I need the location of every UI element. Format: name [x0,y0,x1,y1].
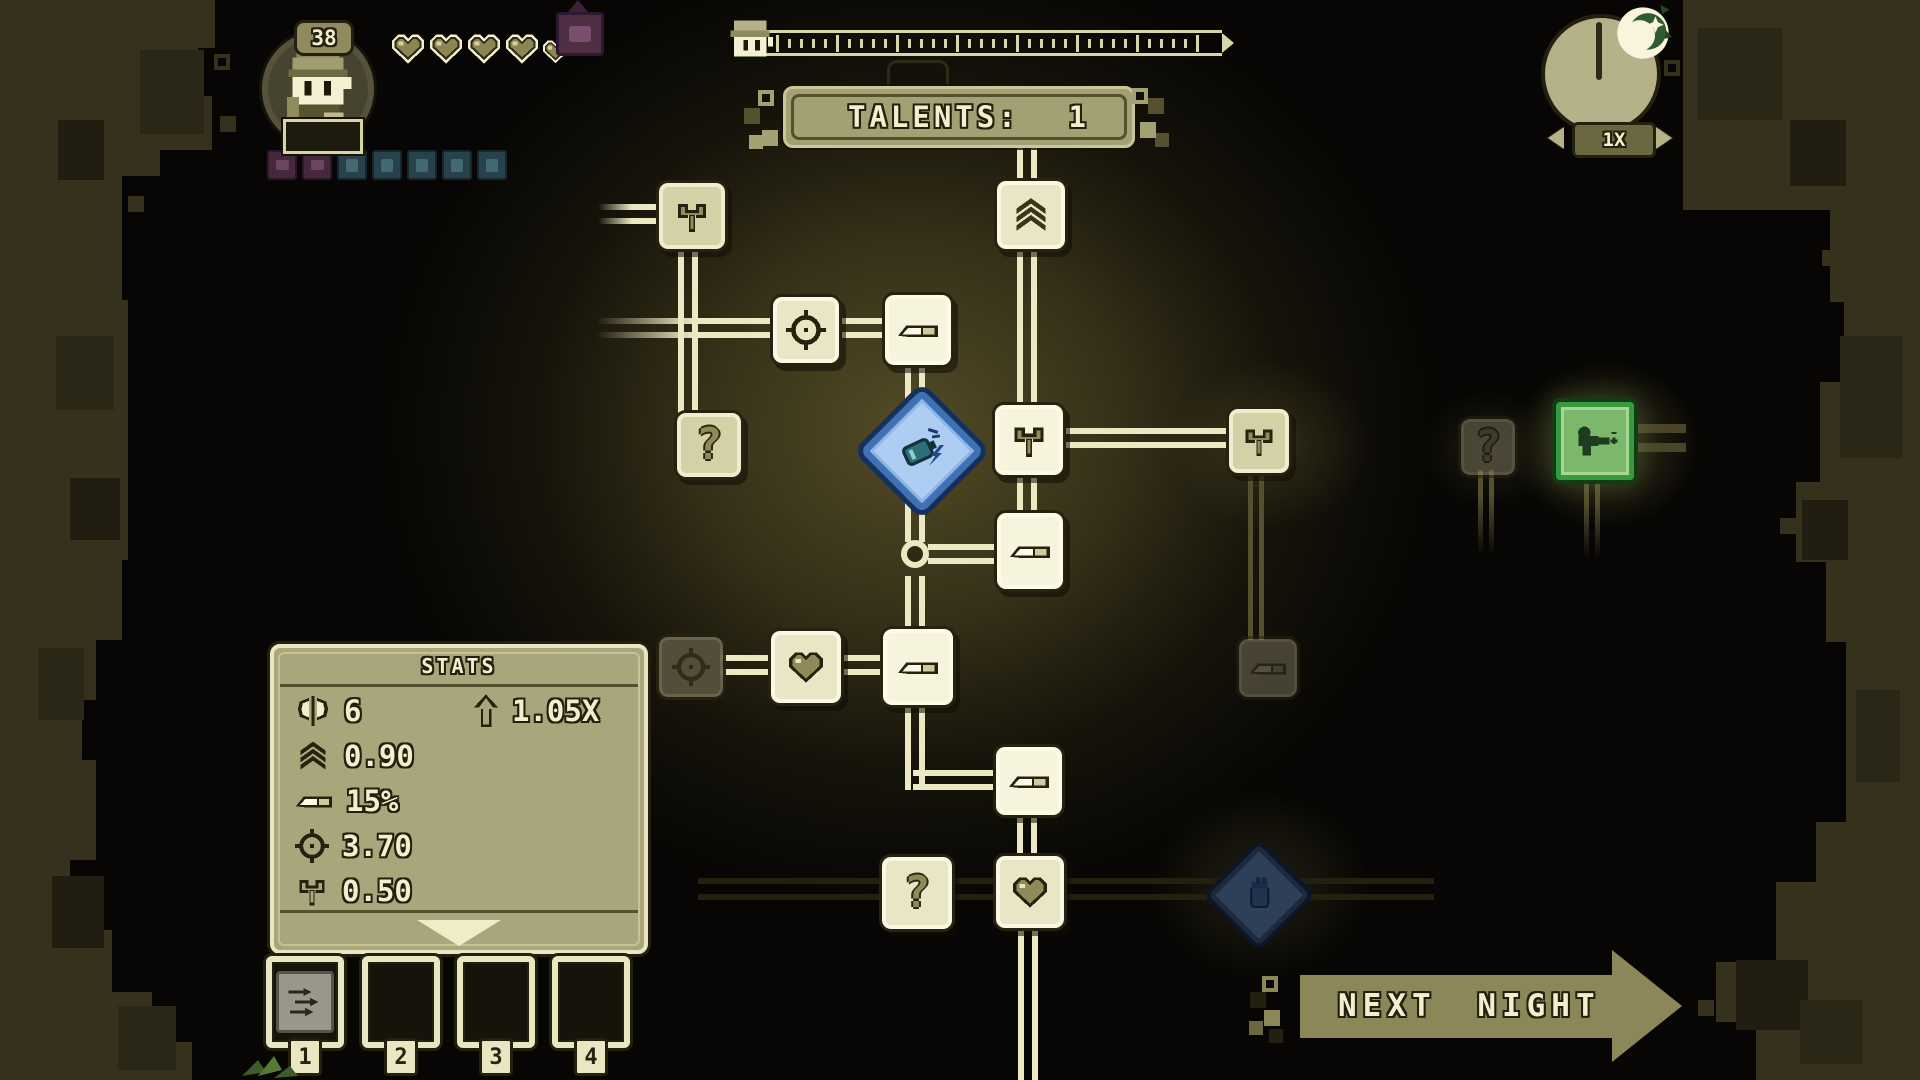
slot-number: 2 [384,1038,418,1076]
branch-decoration [38,648,84,720]
talent-node-question-bottom[interactable]: ? [879,854,955,932]
axe-icon [294,694,332,728]
status-glyph [311,160,324,170]
progress-tick [920,39,923,48]
heart [502,30,542,67]
hammer-icon [672,196,712,236]
talent-node-chevrons-top[interactable] [994,178,1068,252]
stat-row-multiplier: 1.05X [472,692,599,730]
buff-glyph [569,26,591,42]
buff-arrow-icon [568,0,588,12]
item-slot-4[interactable]: 4 [552,956,630,1048]
status-square-purple [267,150,297,180]
tree-link-locked [1630,443,1686,452]
talent-node-heart-2[interactable] [993,853,1067,931]
talent-node-knife-locked[interactable] [1236,636,1300,700]
crosshair-value: 3.70 [342,829,412,863]
speed-value: 1X [1603,129,1626,151]
heart-icon [502,30,542,67]
knife-value: 15% [346,784,398,818]
status-glyph [451,159,463,172]
progress-tick [860,39,863,48]
tree-link-locked [1478,470,1494,556]
talent-node-blaster-green[interactable] [1552,398,1638,484]
talents-banner: TALENTS: 1 [783,86,1135,148]
backpack-icon [1239,873,1279,913]
next-night-label: NEXT NIGHT [1338,988,1601,1024]
item-tile [276,971,334,1033]
progress-tick [980,39,983,48]
stats-expand-arrow[interactable] [417,920,501,946]
progress-tick [1076,35,1079,52]
stats-separator [280,910,638,913]
knife-icon [294,791,334,812]
branch-decoration [1840,336,1902,458]
progress-tick [896,35,899,52]
progress-tick [824,39,827,48]
knife-icon [1008,540,1052,563]
branch-decoration [1790,120,1846,186]
hammer-value: 0.50 [342,874,412,908]
progress-tick [776,35,779,52]
talent-node-knife-4[interactable] [993,744,1065,818]
heart-icon [785,648,827,686]
progress-tick [788,39,791,48]
battery-icon [896,423,948,479]
level-badge: 38 [294,20,354,56]
next-night-arrowhead-icon [1612,950,1682,1062]
progress-tick [884,39,887,48]
crosshair-icon [785,309,827,351]
stat-row-knife: 15% [294,782,398,820]
branch-decoration [58,120,104,180]
tree-link [836,318,884,338]
crosshair-icon [294,828,330,864]
moon-icon [1614,4,1672,66]
talent-node-question-locked[interactable]: ? [1458,416,1518,478]
buff-badge-icon [556,12,604,56]
progress-tick [956,35,959,52]
night-progress-bar [762,30,1222,56]
knife-icon [1248,658,1288,679]
tree-link-locked [1584,476,1600,560]
up-arrow-icon [472,693,500,729]
progress-tick [1040,39,1043,48]
heart [388,30,428,67]
tree-link [1017,244,1037,406]
status-glyph [276,160,289,170]
health-hearts [388,26,569,70]
axe-value: 6 [344,694,361,728]
talent-node-hammer-mid[interactable] [992,402,1066,478]
tree-junction-ring [901,540,929,568]
progress-tick [1148,39,1151,48]
speed-up-arrow[interactable] [1656,127,1672,149]
question-icon: ? [904,871,931,915]
stats-separator [280,684,638,687]
progress-tick [944,39,947,48]
clock-needle [1596,22,1602,80]
status-square-teal [337,150,367,180]
bag-icon [1239,873,1279,917]
talents-label: TALENTS: [848,100,1020,134]
branch-decoration [1802,500,1848,560]
chevrons-value: 0.90 [344,739,414,773]
talent-screen: ? ? ? [0,0,1920,1080]
branch-decoration [52,876,104,948]
progress-tick [1184,39,1187,48]
stat-row-hammer: 0.50 [294,872,412,910]
plant-decoration [238,1044,302,1080]
status-glyph [381,159,393,172]
heart-icon [464,30,504,67]
progress-tick [848,39,851,48]
progress-tick [968,39,971,48]
tree-link [838,655,882,675]
stat-row-chevrons: 0.90 [294,737,414,775]
talent-node-crosshair-locked[interactable] [656,634,726,700]
progress-tick [872,39,875,48]
stats-title: STATS [274,654,644,678]
progress-tick [1064,39,1067,48]
stat-row-axe: 6 [294,692,361,730]
status-square-teal [477,150,507,180]
question-icon: ? [1475,425,1502,469]
item-slot-2[interactable]: 2 [362,956,440,1048]
branch-decoration [118,1006,176,1070]
tree-link [905,576,925,630]
talent-node-question-left[interactable]: ? [674,410,744,480]
status-square-teal [407,150,437,180]
progress-marker-head-icon [724,20,776,64]
status-square-purple [302,150,332,180]
branch-decoration [1856,690,1900,782]
hammer-icon [294,873,330,909]
talent-node-knife-3[interactable] [880,626,956,708]
progress-bar-end-arrow [1222,33,1234,53]
branch-decoration [56,336,114,410]
wall-dither [218,58,226,66]
progress-tick [1112,39,1115,48]
hammer-icon [1008,419,1050,461]
talents-value: 1 [1069,100,1086,134]
banner-dither-left [762,94,770,102]
progress-tick [908,39,911,48]
slot-number: 4 [574,1038,608,1076]
crosshair-icon [671,647,711,687]
progress-tick [1124,39,1127,48]
battery-bolt-icon [896,423,948,475]
status-glyph [346,159,358,172]
branch-decoration [70,478,120,540]
blaster-icon [1572,423,1618,459]
tree-link-locked [1630,424,1686,433]
talent-node-knife-2[interactable] [994,510,1066,592]
nameplate [283,119,363,154]
progress-tick [932,39,935,48]
chevrons-icon [1010,194,1052,236]
progress-tick [992,39,995,48]
stat-row-crosshair: 3.70 [294,827,412,865]
knife-icon [1007,770,1051,793]
heart-icon [426,30,466,67]
talent-node-crosshair[interactable] [770,294,842,366]
talent-node-knife-1[interactable] [882,292,954,368]
banner-dither-right [1136,92,1144,100]
progress-tick [1052,39,1055,48]
level-value: 38 [311,26,336,50]
progress-tick [1172,39,1175,48]
progress-tick [1016,35,1019,52]
tree-link [596,318,774,338]
progress-tick [1088,39,1091,48]
progress-tick [1160,39,1163,48]
question-icon: ? [696,423,723,467]
tree-link-locked [1248,468,1264,640]
progress-ticks [776,33,1199,53]
tree-link [1058,428,1228,448]
triple-arrow-icon [285,982,325,1022]
progress-tick [1100,39,1103,48]
heart [426,30,466,67]
status-square-teal [372,150,402,180]
progress-tick [1028,39,1031,48]
status-glyph [486,159,498,172]
branch-decoration [1698,28,1782,120]
tree-link [720,655,770,675]
progress-tick [1136,35,1139,52]
speed-down-arrow[interactable] [1548,127,1564,149]
status-effect-row [267,150,507,180]
branch-decoration [1800,1000,1862,1064]
heart [464,30,504,67]
talent-node-hammer-right[interactable] [1226,406,1292,476]
tree-link [598,204,660,224]
branch-decoration [140,50,204,134]
tree-link [1018,923,1038,1080]
progress-tick [800,39,803,48]
item-slot-3[interactable]: 3 [457,956,535,1048]
status-square-teal [442,150,472,180]
next-night-button[interactable]: NEXT NIGHT [1280,948,1682,1066]
item-slot-1[interactable]: 1 [266,956,344,1048]
multiplier-value: 1.05X [512,694,599,728]
tree-link [928,544,996,564]
progress-tick [836,35,839,52]
chevrons-icon [294,738,332,774]
heart-icon [1009,873,1051,911]
knife-icon [896,656,940,679]
branch-decoration [1736,960,1808,1030]
heart-icon [388,30,428,67]
progress-tick [1004,39,1007,48]
stats-panel: STATS 6 1.05X 0.90 15% 3.70 0.50 [270,644,648,954]
talent-node-heart-1[interactable] [768,628,844,706]
tree-link [913,770,997,790]
speed-toggle[interactable]: 1X [1572,122,1656,158]
slot-number: 3 [479,1038,513,1076]
progress-tick [812,39,815,48]
status-glyph [416,159,428,172]
hammer-icon [1240,422,1278,460]
next-night-dither [1266,980,1274,988]
progress-tick [1196,35,1199,52]
knife-icon [896,319,940,342]
talent-node-hammer-top[interactable] [656,180,728,252]
